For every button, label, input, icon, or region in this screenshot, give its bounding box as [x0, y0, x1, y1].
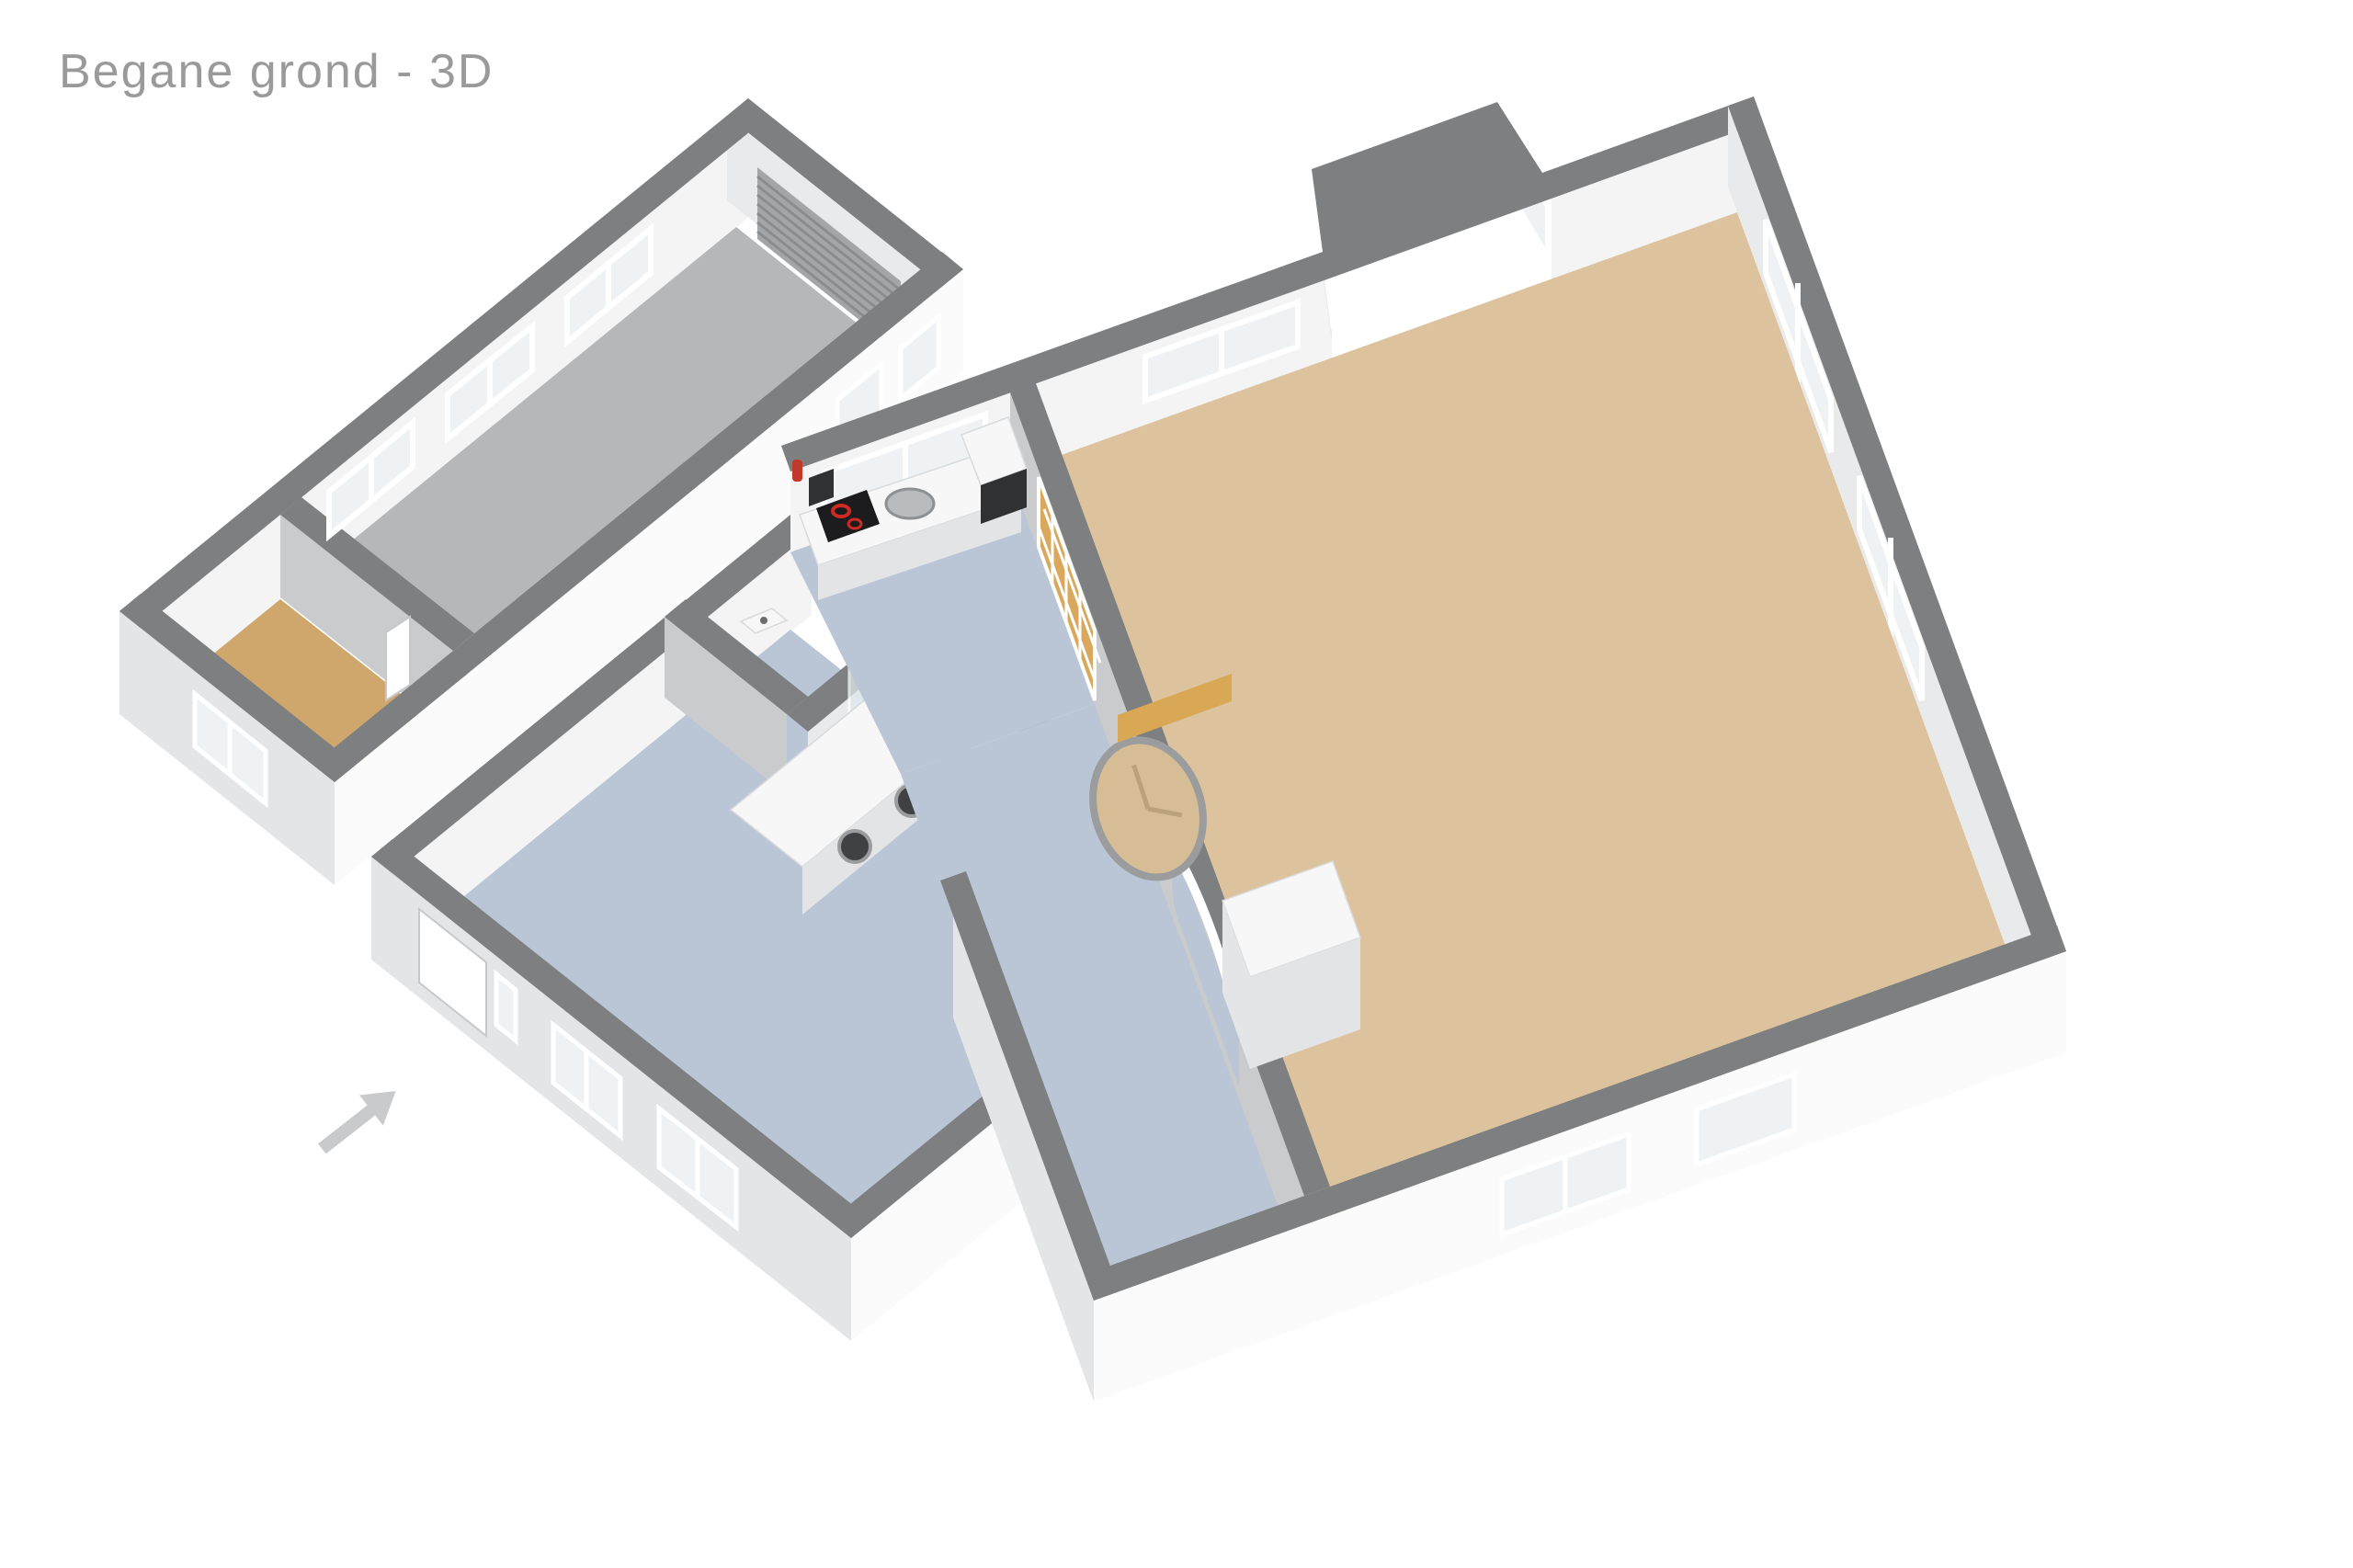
storage-door — [386, 617, 410, 700]
floorplan-page: Begane grond - 3D — [0, 0, 2353, 1568]
round-kitchen-sink — [886, 489, 934, 518]
floorplan-3d-scene — [0, 0, 2353, 1568]
entrance-arrow-icon — [310, 1076, 407, 1165]
fire-extinguisher — [792, 460, 802, 482]
washer-door-1 — [839, 831, 870, 862]
